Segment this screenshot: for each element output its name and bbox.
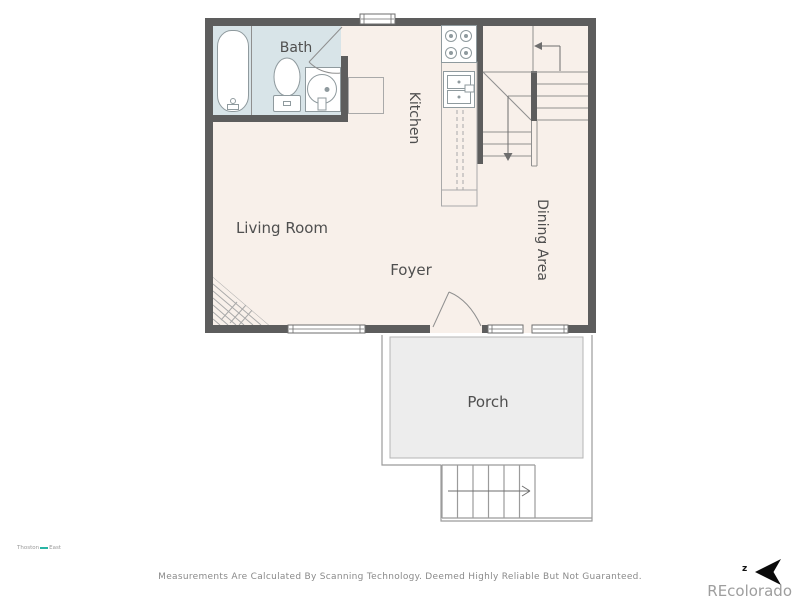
provider-logo-text-left: Thoston xyxy=(17,545,39,551)
compass-letter: z xyxy=(742,564,747,574)
wall-top xyxy=(205,18,596,26)
bath-wall-bottom xyxy=(205,115,348,122)
room-label-bath: Bath xyxy=(280,40,313,56)
window-living-room xyxy=(288,325,365,333)
kitchen-stair-wall xyxy=(477,18,483,164)
room-label-dining-area: Dining Area xyxy=(534,199,550,281)
wall-bottom-post xyxy=(482,325,488,333)
porch-structure xyxy=(382,335,592,521)
window-dining-2 xyxy=(532,325,568,333)
wall-bottom-3 xyxy=(568,325,596,333)
stove-icon xyxy=(442,26,477,63)
disclaimer-text: Measurements Are Calculated By Scanning … xyxy=(0,572,800,582)
provider-logo-accent xyxy=(40,547,48,549)
room-label-living-room: Living Room xyxy=(236,219,328,237)
wall-right xyxy=(588,18,596,333)
wall-left xyxy=(205,18,213,333)
floor-plan-page: Bath Kitchen Living Room Foyer Dining Ar… xyxy=(0,0,800,600)
floor-plan-drawing: Bath Kitchen Living Room Foyer Dining Ar… xyxy=(0,0,800,600)
stair-center-wall xyxy=(531,71,537,121)
wall-bottom-2 xyxy=(365,325,430,333)
wall-bottom-1 xyxy=(205,325,288,333)
watermark-text: REcolorado xyxy=(707,582,792,600)
window-top xyxy=(360,14,395,24)
toilet-icon xyxy=(274,58,301,112)
room-label-foyer: Foyer xyxy=(390,261,432,279)
provider-logo-text-right: East xyxy=(49,545,61,551)
room-label-kitchen: Kitchen xyxy=(406,92,422,145)
window-dining-1 xyxy=(488,325,523,333)
bath-wall-right xyxy=(341,56,348,122)
sink-vanity-icon xyxy=(306,68,341,112)
provider-logo: Thoston East xyxy=(17,545,61,551)
kitchen-sink-icon xyxy=(444,72,475,108)
room-label-porch: Porch xyxy=(467,393,508,411)
bathtub-icon xyxy=(218,31,249,112)
